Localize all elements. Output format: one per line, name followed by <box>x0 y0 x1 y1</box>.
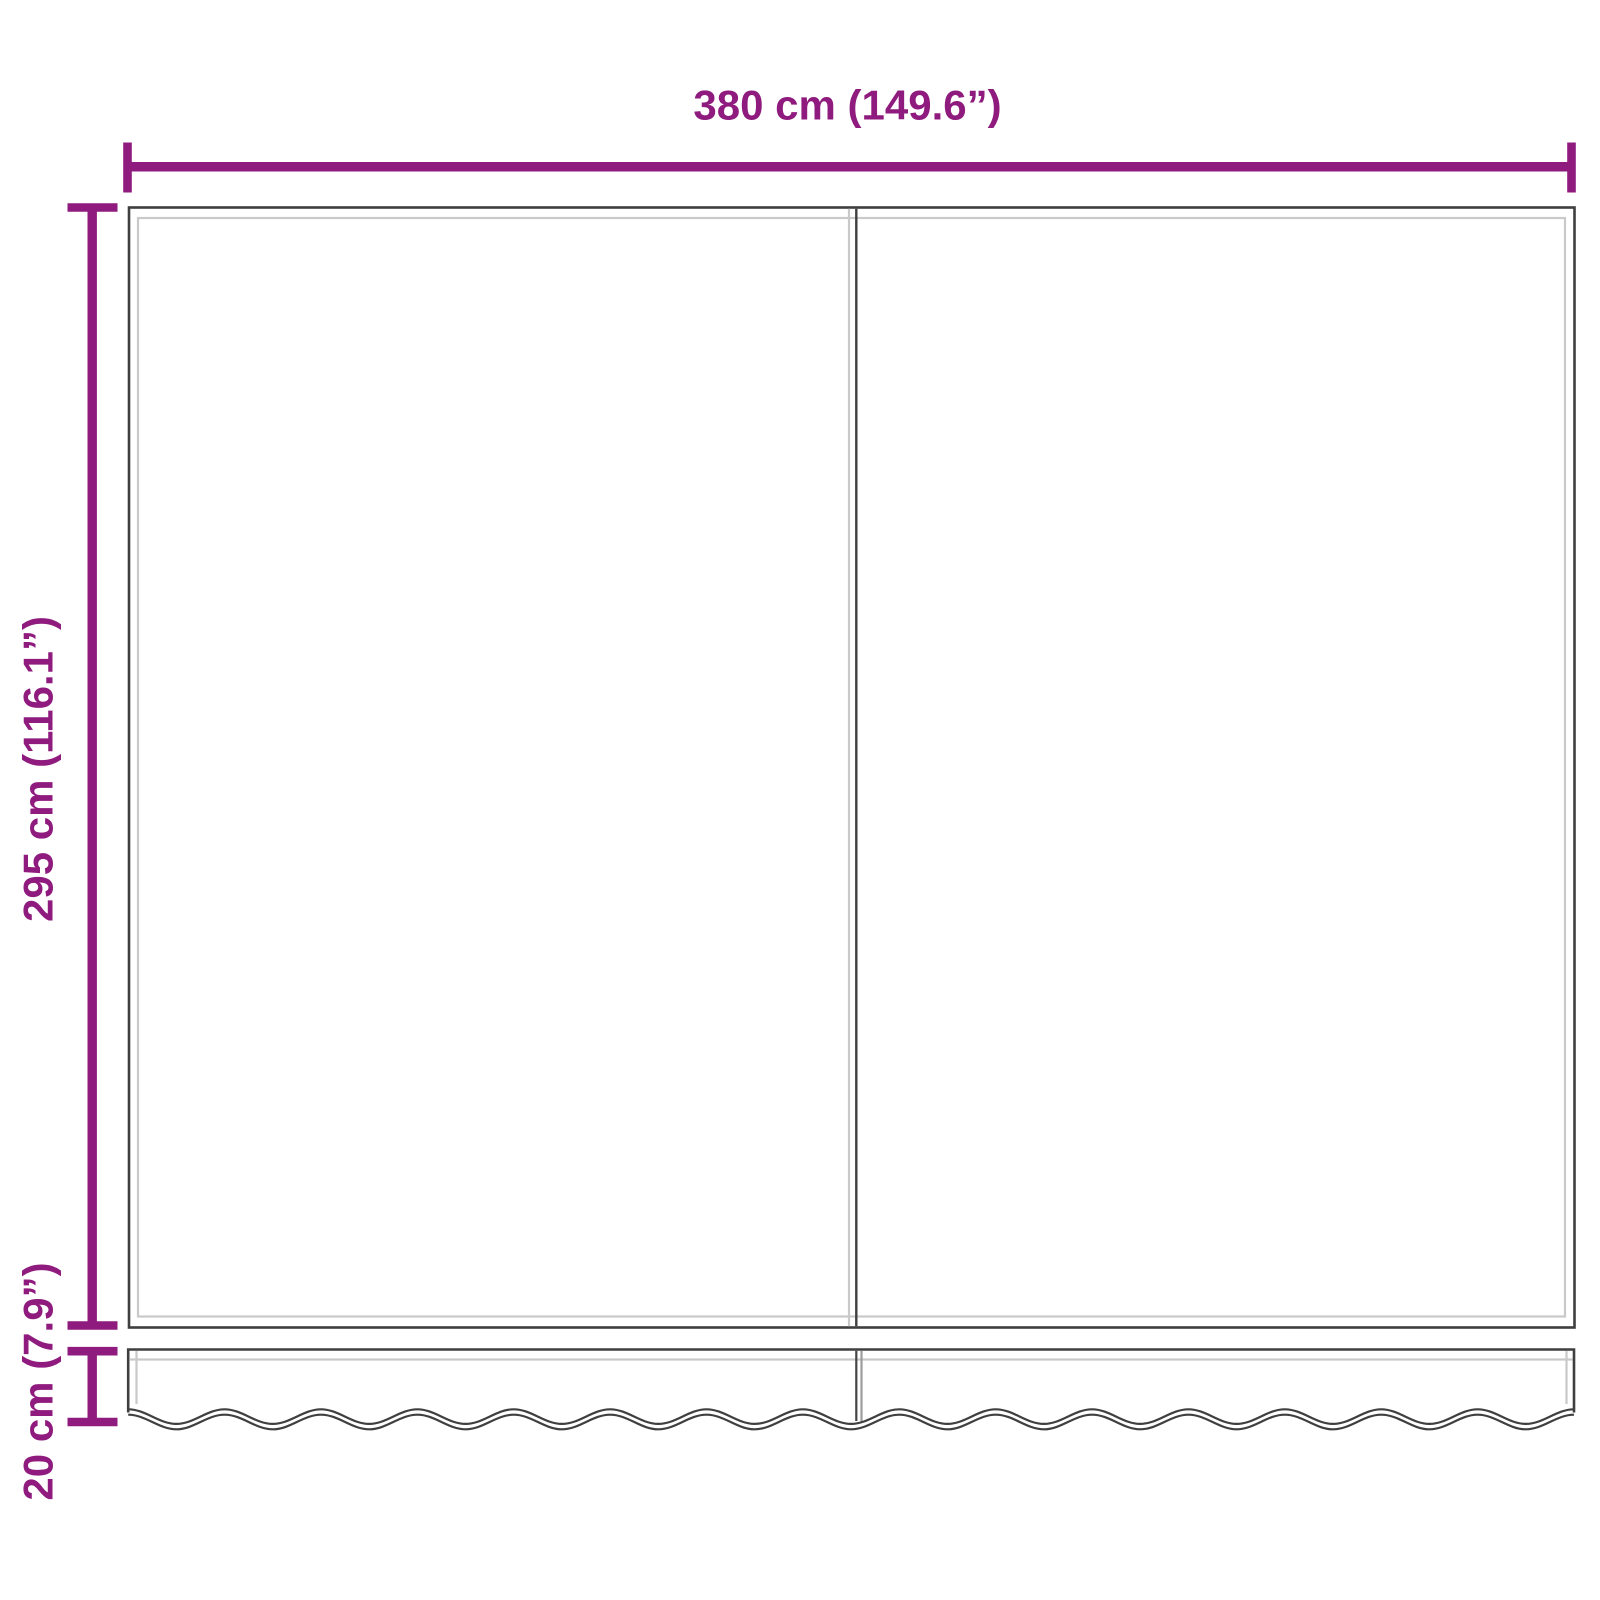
fabric-main-panel <box>129 208 1575 1328</box>
awning-fabric-dimension-diagram: 380 cm (149.6”) 295 cm (116.1”) 20 cm (7… <box>0 0 1600 1600</box>
width-dimension: 380 cm (149.6”) <box>128 82 1572 193</box>
valance-height-dimension: 20 cm (7.9”) <box>15 1262 118 1500</box>
valance-flounce <box>128 1350 1574 1430</box>
valance-hem-stitch-line <box>130 1351 1573 1404</box>
fabric-hem-stitch-line <box>138 218 1565 1317</box>
diagram-canvas: 380 cm (149.6”) 295 cm (116.1”) 20 cm (7… <box>0 0 1600 1600</box>
width-dimension-label: 380 cm (149.6”) <box>693 82 1001 129</box>
fabric-outer-edge <box>129 208 1575 1328</box>
valance-height-dimension-label: 20 cm (7.9”) <box>15 1262 62 1500</box>
height-dimension-label: 295 cm (116.1”) <box>15 616 62 922</box>
height-dimension: 295 cm (116.1”) <box>15 208 118 1326</box>
